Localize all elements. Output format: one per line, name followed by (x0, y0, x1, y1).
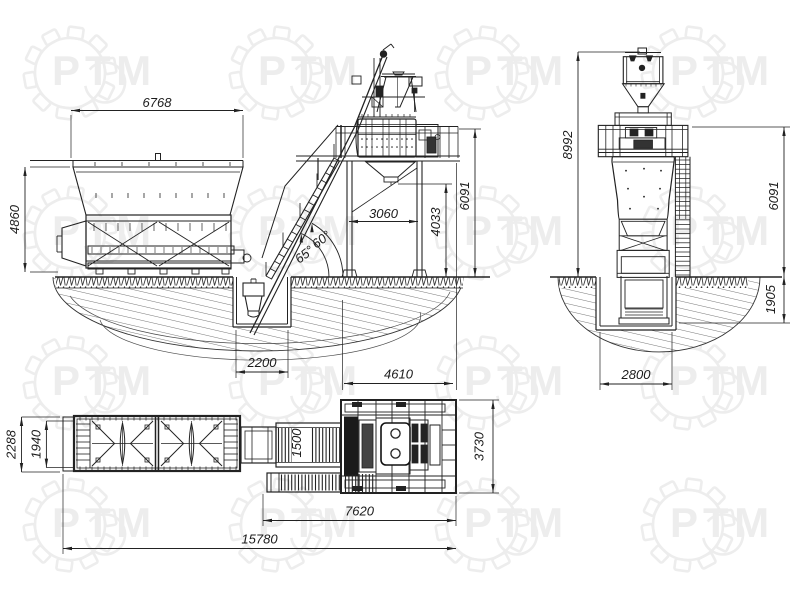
svg-text:4860: 4860 (7, 204, 22, 234)
svg-text:2800: 2800 (621, 367, 652, 382)
svg-text:РТМ: РТМ (670, 47, 775, 94)
svg-text:РТМ: РТМ (464, 499, 569, 546)
svg-text:РТМ: РТМ (52, 47, 157, 94)
svg-text:6091: 6091 (457, 182, 472, 211)
svg-text:РТМ: РТМ (52, 357, 157, 404)
svg-text:РТМ: РТМ (258, 47, 363, 94)
svg-text:3060: 3060 (369, 206, 399, 221)
svg-text:6768: 6768 (143, 95, 173, 110)
svg-text:РТМ: РТМ (670, 357, 775, 404)
svg-text:РТМ: РТМ (464, 357, 569, 404)
svg-text:7620: 7620 (345, 504, 375, 519)
svg-text:4033: 4033 (428, 207, 443, 237)
svg-text:РТМ: РТМ (52, 207, 157, 254)
svg-text:3730: 3730 (472, 431, 487, 461)
svg-text:1905: 1905 (763, 284, 778, 314)
svg-text:РТМ: РТМ (464, 207, 569, 254)
svg-text:2200: 2200 (247, 355, 278, 370)
svg-text:2288: 2288 (4, 429, 19, 460)
svg-text:1940: 1940 (28, 429, 43, 459)
svg-text:8992: 8992 (560, 130, 575, 160)
svg-text:РТМ: РТМ (52, 499, 157, 546)
svg-text:РТМ: РТМ (670, 499, 775, 546)
svg-text:6091: 6091 (766, 182, 781, 211)
svg-text:1500: 1500 (289, 428, 304, 458)
svg-text:15780: 15780 (241, 532, 278, 547)
svg-text:4610: 4610 (384, 367, 414, 382)
svg-text:РТМ: РТМ (464, 47, 569, 94)
